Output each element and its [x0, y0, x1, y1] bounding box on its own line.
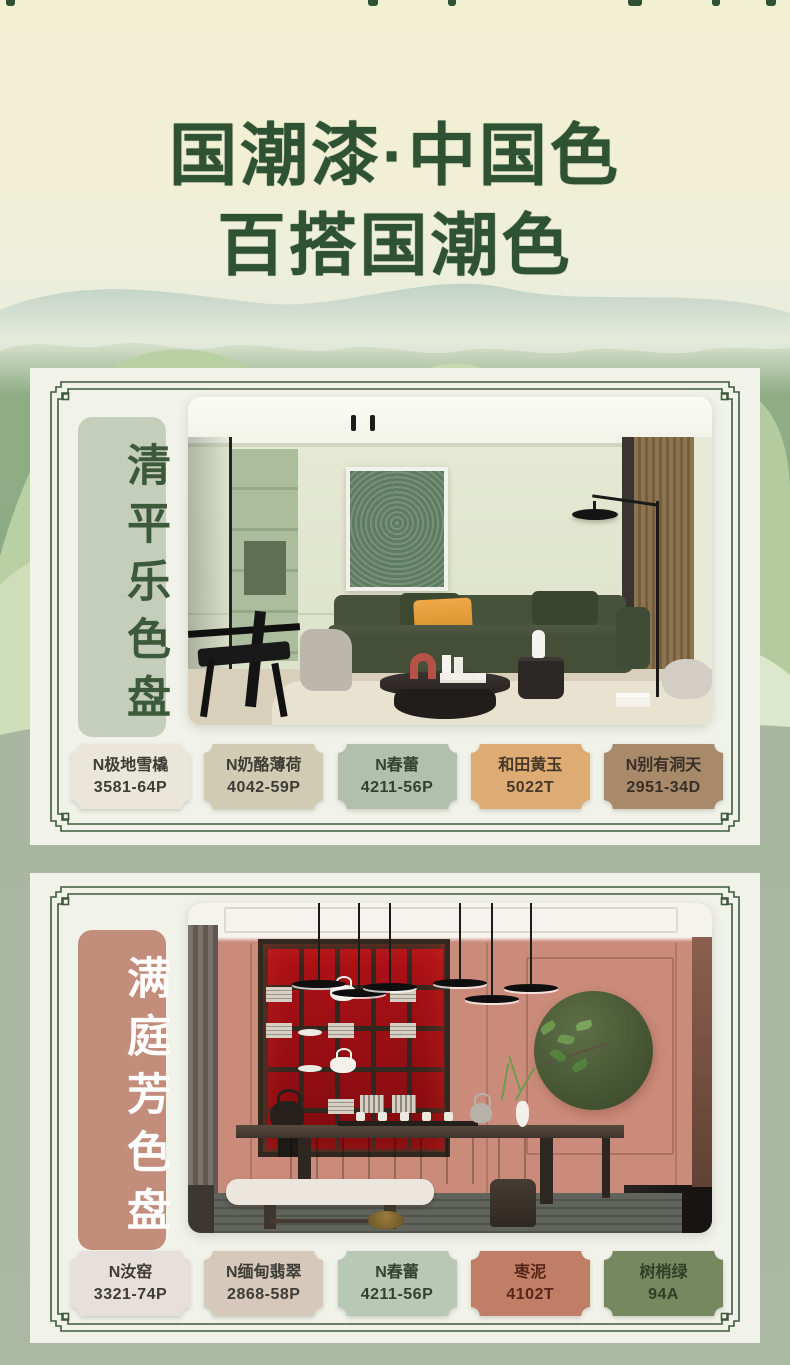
swatch-4211-56P: N春蕾 4211-56P: [337, 1250, 458, 1317]
swatch-name: N春蕾: [375, 1262, 419, 1284]
poster-page: 国潮漆·中国色 百搭国潮色 清平乐色盘: [0, 0, 790, 1365]
swatch-code: 3321-74P: [94, 1284, 167, 1306]
swatch-name: N奶酪薄荷: [226, 755, 302, 777]
swatch-code: 3581-64P: [94, 777, 167, 799]
white-vases: [442, 655, 451, 673]
pendant-cord: [491, 903, 493, 999]
metal-teapot: [470, 1103, 492, 1123]
swatch-name: N汝窑: [109, 1262, 153, 1284]
swatch-name: 和田黄玉: [498, 755, 562, 777]
swatch-94A: 树梢绿 94A: [603, 1250, 724, 1317]
spotlight: [370, 415, 375, 431]
swatch-name: N别有洞天: [626, 755, 702, 777]
curtain: [188, 925, 218, 1207]
tea-cup: [444, 1112, 453, 1121]
cropped-text-mark: [766, 0, 776, 6]
swatch-name: N极地雪橇: [93, 755, 169, 777]
sofa: [328, 625, 634, 673]
red-arch-decor: [410, 653, 436, 679]
tea-cup: [378, 1112, 387, 1121]
floor: [188, 1185, 214, 1233]
shelf-box: [390, 1023, 416, 1038]
swatch-code: 94A: [648, 1284, 679, 1306]
pendant-light: [363, 983, 417, 991]
shelf-plate: [298, 1065, 322, 1072]
wall-panel-line: [675, 943, 677, 1195]
floor-lamp-pole: [656, 501, 659, 697]
pendant-cord: [358, 903, 360, 993]
pendant-light: [465, 995, 519, 1003]
swatch-code: 4211-56P: [361, 777, 434, 799]
white-vase: [516, 1101, 529, 1127]
swatch-row: N汝窑 3321-74P N缅甸翡翠 2868-58P N春蕾 4211-56P: [70, 1250, 724, 1317]
floor-books: [616, 697, 650, 707]
astronaut-figurine: [532, 630, 545, 658]
swatch-name: N缅甸翡翠: [226, 1262, 302, 1284]
tea-tray: [338, 1121, 478, 1126]
cropped-text-mark: [6, 0, 15, 6]
cropped-text-mark: [628, 0, 642, 6]
pendant-light: [504, 984, 558, 992]
side-table: [518, 657, 564, 699]
page-title: 国潮漆·中国色 百搭国潮色: [0, 112, 790, 292]
throw-blanket: [300, 629, 352, 691]
swatch-3581-64P: N极地雪橇 3581-64P: [70, 743, 191, 810]
pendant-light: [433, 979, 487, 987]
side-wall: [692, 937, 712, 1187]
ceiling-tray: [224, 907, 678, 933]
pendant-cord: [318, 903, 320, 984]
swatch-code: 2868-58P: [227, 1284, 300, 1306]
swatch-name: N春蕾: [375, 755, 419, 777]
gold-bowl: [368, 1211, 404, 1229]
swatch-code: 5022T: [506, 777, 554, 799]
table-leg: [602, 1138, 610, 1198]
tea-cup: [422, 1112, 431, 1121]
tea-room-photo: [188, 903, 712, 1233]
swatch-2951-34D: N别有洞天 2951-34D: [603, 743, 724, 810]
shelf-box: [328, 1023, 354, 1038]
tea-table-base: [290, 1138, 568, 1184]
shelf-slat-box: [392, 1095, 416, 1113]
swatch-4042-59P: N奶酪薄荷 4042-59P: [203, 743, 324, 810]
living-room-photo: [188, 397, 712, 725]
cropped-text-mark: [368, 0, 378, 6]
shelf-box: [266, 1023, 292, 1038]
cropped-text-mark: [448, 0, 456, 6]
sofa-cushion: [532, 591, 598, 625]
plant-sprig: [508, 1056, 522, 1093]
swatch-2868-58P: N缅甸翡翠 2868-58P: [203, 1250, 324, 1317]
pendant-cord: [459, 903, 461, 983]
swatch-name: 树梢绿: [639, 1262, 687, 1284]
floor-lamp: [572, 509, 618, 520]
tea-cup: [356, 1112, 365, 1121]
swatch-code: 4042-59P: [227, 777, 300, 799]
wall-artwork: [346, 467, 448, 591]
palette-title-mantingfang: 满庭芳色盘: [78, 930, 166, 1250]
shelf-teapot: [330, 1057, 356, 1073]
white-bench: [226, 1179, 434, 1205]
title-line-1: 国潮漆·中国色: [0, 112, 790, 202]
table-leg: [540, 1138, 553, 1204]
palette-title-qingpingle: 清平乐色盘: [78, 417, 166, 737]
swatch-name: 枣泥: [514, 1262, 546, 1284]
swatch-5022T: 和田黄玉 5022T: [470, 743, 591, 810]
plant-sprig: [501, 1063, 510, 1101]
wall-panel-line: [250, 943, 252, 1195]
coffee-table-base: [394, 689, 496, 719]
shelf-box: [328, 1099, 354, 1114]
table-books: [440, 673, 486, 680]
swatch-3321-74P: N汝窑 3321-74P: [70, 1250, 191, 1317]
swatch-row: N极地雪橇 3581-64P N奶酪薄荷 4042-59P N春蕾 4211-5…: [70, 743, 724, 810]
swatch-4211-56P-highlighted: N春蕾 4211-56P: [337, 743, 458, 810]
sofa-armrest: [616, 607, 650, 669]
wood-stool: [490, 1179, 536, 1227]
tea-table: [236, 1125, 624, 1138]
side-wall: [694, 437, 712, 677]
palette-card-qingpingle: 清平乐色盘: [30, 368, 760, 845]
swatch-code: 4211-56P: [361, 1284, 434, 1306]
cabinet-niche: [244, 541, 286, 595]
spotlight: [351, 415, 356, 431]
pouf: [662, 659, 712, 699]
shelf-plate: [298, 1029, 322, 1036]
cropped-text-mark: [712, 0, 720, 6]
bench-leg: [264, 1205, 276, 1229]
tea-cup: [400, 1112, 409, 1121]
swatch-4102T-highlighted: 枣泥 4102T: [470, 1250, 591, 1317]
title-line-2: 百搭国潮色: [0, 202, 790, 292]
swatch-code: 2951-34D: [626, 777, 700, 799]
shelf-box: [266, 987, 292, 1002]
palette-card-mantingfang: 满庭芳色盘: [30, 873, 760, 1343]
shelf-slat-box: [360, 1095, 384, 1113]
swatch-code: 4102T: [506, 1284, 554, 1306]
pendant-light: [292, 980, 346, 988]
pendant-cord: [530, 903, 532, 988]
pendant-cord: [389, 903, 391, 987]
